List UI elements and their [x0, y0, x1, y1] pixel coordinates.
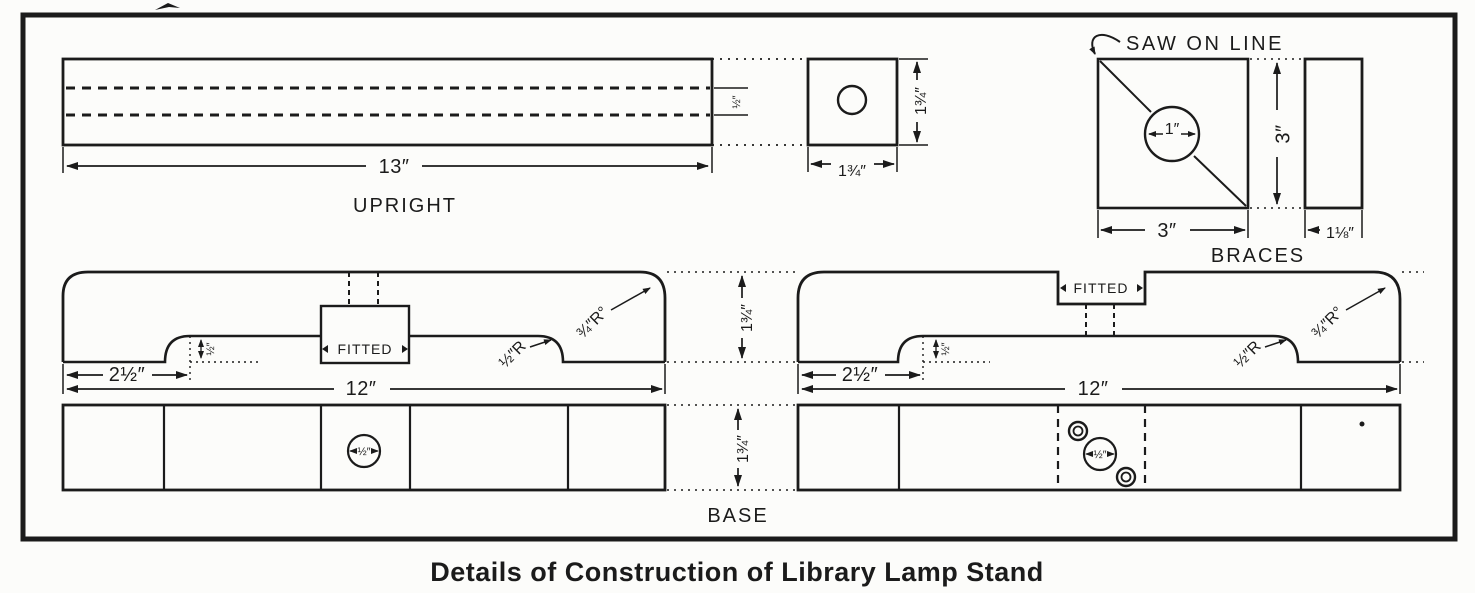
fitted-arrow-left	[1060, 284, 1066, 292]
length-dim: 12″	[346, 378, 377, 400]
fillet-radius-leader	[1265, 340, 1286, 347]
plan-outline	[798, 405, 1400, 490]
fitted-arrow-left	[322, 345, 328, 353]
base-thickness-dim: 1¾″	[667, 272, 796, 362]
screw-hole	[1117, 468, 1135, 486]
base-plan-left: ½″	[63, 405, 665, 490]
fitted-arrow-right	[402, 345, 408, 353]
brace-side-view	[1305, 59, 1362, 208]
corner-radius-leader	[1346, 288, 1385, 310]
brace-width-dim: 3″	[1157, 220, 1176, 242]
end-view-outline	[808, 59, 897, 145]
foot-dim: 2½″	[842, 364, 878, 386]
fitted-arrow-right	[1137, 284, 1143, 292]
saw-line-upper	[1100, 61, 1151, 112]
end-width-dim: 1¾″	[838, 163, 866, 180]
fitted-label: FITTED	[338, 341, 393, 357]
construction-drawing: ½″ 13″ UPRIGHT 1¾″ 1¾″ SAW ON LINE 1	[0, 0, 1475, 593]
upright-outline	[63, 59, 712, 145]
base-thickness-dim-label: 1¾″	[739, 304, 756, 332]
fillet-radius-leader	[530, 340, 551, 347]
base-foot-left	[63, 336, 321, 362]
step-dim: ½″	[940, 342, 952, 355]
braces-label: BRACES	[1211, 245, 1305, 267]
screw-hole-inner	[1074, 427, 1083, 436]
upright-view: ½″ 13″ UPRIGHT	[63, 59, 806, 217]
base-side-left: FITTED ½″ 2½″ 12″ ½″R ¾″R°	[63, 272, 665, 400]
fillet-radius-label: ½″R	[496, 338, 530, 372]
base-foot-line	[798, 336, 1400, 362]
corner-radius-leader	[611, 288, 650, 310]
upright-length-dim: 13″	[379, 156, 410, 178]
brace-thickness-dim: 1⅛″	[1326, 225, 1354, 242]
saw-line-lower	[1194, 156, 1246, 206]
plan-thickness-dim-label: 1¾″	[735, 435, 752, 463]
base-foot-right	[409, 336, 665, 362]
drawing-sheet: ½″ 13″ UPRIGHT 1¾″ 1¾″ SAW ON LINE 1	[0, 0, 1475, 593]
corner-radius-label: ¾″R°	[574, 304, 612, 342]
screw-hole-inner	[1122, 473, 1131, 482]
fitted-label: FITTED	[1074, 280, 1129, 296]
saw-on-line-note: SAW ON LINE	[1126, 33, 1284, 55]
step-dim: ½″	[205, 342, 217, 355]
base-side-right: FITTED ½″ 2½″ 12″ ½″R ¾″R°	[798, 272, 1424, 400]
upright-label: UPRIGHT	[353, 195, 457, 217]
base-plan-right: ½″	[798, 405, 1400, 490]
drawing-caption: Details of Construction of Library Lamp …	[430, 557, 1044, 587]
upright-channel-dim: ½″	[731, 95, 743, 108]
foot-dim: 2½″	[109, 364, 145, 386]
brace-hole-dim: 1″	[1165, 121, 1180, 138]
brace-height-dim: 3″	[1272, 124, 1294, 143]
center-hole-dim: ½″	[357, 446, 370, 458]
corner-radius-label: ¾″R°	[1309, 304, 1347, 342]
center-hole-dim: ½″	[1093, 449, 1106, 461]
cropped-arrow-artifact	[155, 3, 180, 10]
saw-note-leader	[1092, 35, 1120, 54]
print-speck	[1360, 422, 1365, 427]
base-plan-thickness-dim: 1¾″	[667, 405, 796, 490]
end-height-dim: 1¾″	[913, 87, 930, 115]
braces-view: SAW ON LINE 1″ 3″ 3″ 1⅛″ BRACES	[1092, 33, 1362, 267]
cord-hole	[838, 86, 866, 114]
upright-end-view: 1¾″ 1¾″	[808, 59, 930, 180]
fillet-radius-label: ½″R	[1231, 338, 1265, 372]
length-dim: 12″	[1078, 378, 1109, 400]
screw-hole	[1069, 422, 1087, 440]
base-label: BASE	[707, 505, 768, 527]
